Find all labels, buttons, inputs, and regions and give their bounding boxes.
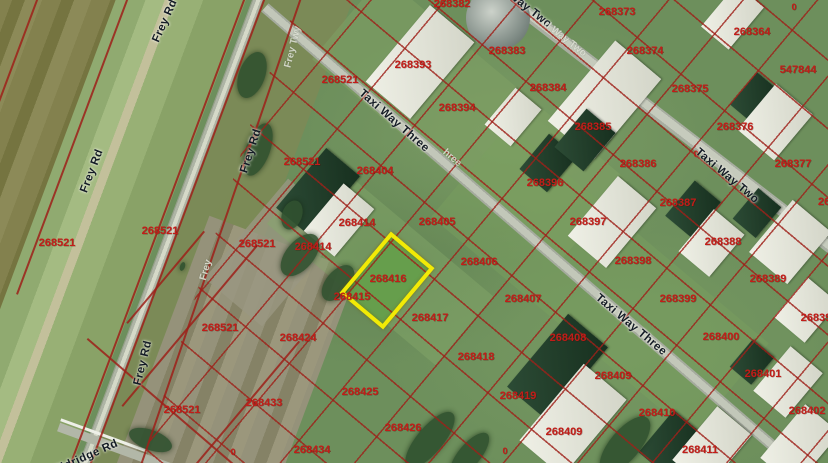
parcel-id-label: 268433 [246,397,283,409]
parcel-id-label: 268386 [620,158,657,170]
parcel-id-label: 268389 [750,273,787,285]
parcel-id-label: 268414 [295,241,332,253]
parcel-id-label: 547844 [780,64,817,76]
parcel-id-label: 268385 [575,121,612,133]
parcel-id-label: 268407 [505,293,542,305]
parcel-id-label: 268400 [703,331,740,343]
parcel-id-label: 268414 [339,217,376,229]
parcel-id-label: 268424 [280,332,317,344]
parcel-id-label: 268521 [284,156,321,168]
parcel-id-label: 268521 [164,404,201,416]
parcel-id-label: 268393 [395,59,432,71]
parcel-id-label: 268384 [530,82,567,94]
parcel-id-label: 268383 [489,45,526,57]
parcel-id-label: 268415 [334,291,371,303]
parcel-id-label: 268409 [595,370,632,382]
parcel-id-label: 268521 [202,322,239,334]
parcel-id-label: 268404 [357,165,394,177]
parcel-id-label: 268408 [550,332,587,344]
parcel-id-label: 268397 [570,216,607,228]
parcel-id-label: 268434 [294,444,331,456]
zero-address-label: 0 [791,2,796,12]
parcel-id-label: 268399 [660,293,697,305]
parcel-id-label: 268401 [745,368,782,380]
parcel-id-label: 268387 [660,197,697,209]
parcel-id-label: 268364 [734,26,771,38]
parcel-id-label: 268382 [434,0,471,10]
parcel-id-label: 26 [818,196,828,208]
parcel-id-label: 268521 [142,225,179,237]
parcel-id-label: 268409 [546,426,583,438]
parcel-id-label: 268375 [672,83,709,95]
parcel-id-label: 268377 [775,158,812,170]
parcel-id-label: 268521 [322,74,359,86]
parcel-id-label: 268411 [682,444,718,456]
parcel-id-label: 268418 [458,351,495,363]
parcel-id-label: 268388 [705,236,742,248]
parcel-id-label: 268373 [599,6,636,18]
parcel-id-label: 268405 [419,216,456,228]
parcel-id-label: 268406 [461,256,498,268]
parcel-id-label: 268426 [385,422,422,434]
parcel-id-label: 268374 [627,45,664,57]
parcel-id-label: 268398 [615,255,652,267]
parcel-id-label: 268521 [239,238,276,250]
parcel-id-label: 268376 [717,121,754,133]
parcel-id-label: 268396 [527,177,564,189]
parcel-id-label: 268390 [801,312,828,324]
parcel-id-label: 268410 [639,407,676,419]
zero-address-label: 0 [230,447,235,457]
parcel-id-label: 268416 [370,273,407,285]
zero-address-label: 0 [502,446,507,456]
parcel-id-label: 268417 [412,312,449,324]
parcel-id-label: 268402 [789,405,826,417]
parcel-id-label: 268419 [500,390,537,402]
aerial-parcel-map: 2683822683732683642683745478442683752683… [0,0,828,463]
parcel-id-label: 268521 [39,237,76,249]
parcel-id-label: 268425 [342,386,379,398]
parcel-id-label: 268394 [439,102,476,114]
